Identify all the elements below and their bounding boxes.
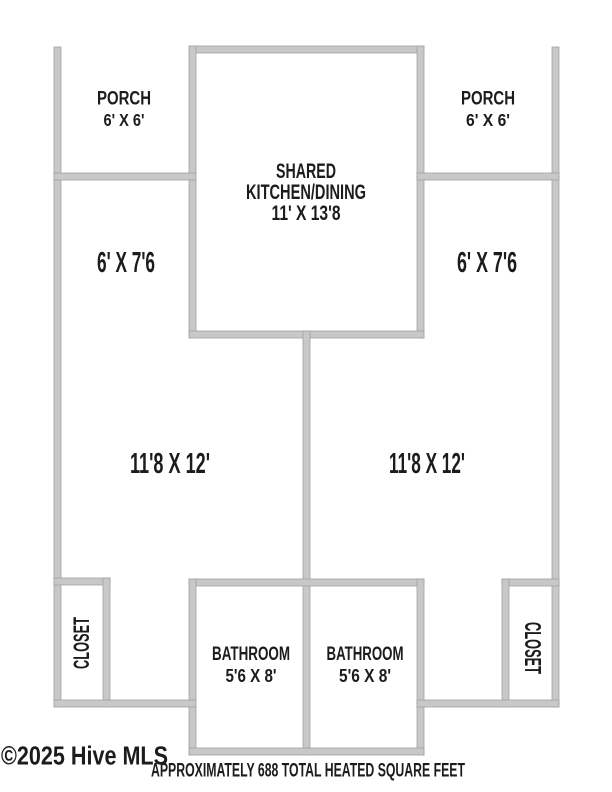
svg-text:6' X 7'6: 6' X 7'6 bbox=[457, 247, 517, 279]
svg-text:6' X 6': 6' X 6' bbox=[104, 110, 145, 130]
svg-text:5'6 X 8': 5'6 X 8' bbox=[339, 665, 391, 686]
svg-text:6' X 6': 6' X 6' bbox=[466, 110, 510, 130]
svg-text:11'8 X 12': 11'8 X 12' bbox=[130, 448, 210, 480]
svg-text:11'8 X 12': 11'8 X 12' bbox=[389, 448, 465, 480]
svg-text:11' X 13'8: 11' X 13'8 bbox=[272, 201, 341, 225]
svg-text:CLOSET: CLOSET bbox=[520, 622, 546, 674]
svg-text:BATHROOM: BATHROOM bbox=[212, 644, 290, 665]
svg-text:BATHROOM: BATHROOM bbox=[327, 644, 404, 665]
svg-text:5'6 X 8': 5'6 X 8' bbox=[226, 665, 277, 686]
svg-text:6' X 7'6: 6' X 7'6 bbox=[97, 247, 155, 279]
svg-text:PORCH: PORCH bbox=[97, 88, 151, 110]
svg-text:©2025 Hive MLS: ©2025 Hive MLS bbox=[1, 743, 168, 771]
svg-text:APPROXIMATELY 688 TOTAL HEATED: APPROXIMATELY 688 TOTAL HEATED SQUARE FE… bbox=[151, 761, 465, 782]
svg-text:PORCH: PORCH bbox=[461, 88, 515, 110]
svg-text:CLOSET: CLOSET bbox=[69, 617, 94, 669]
